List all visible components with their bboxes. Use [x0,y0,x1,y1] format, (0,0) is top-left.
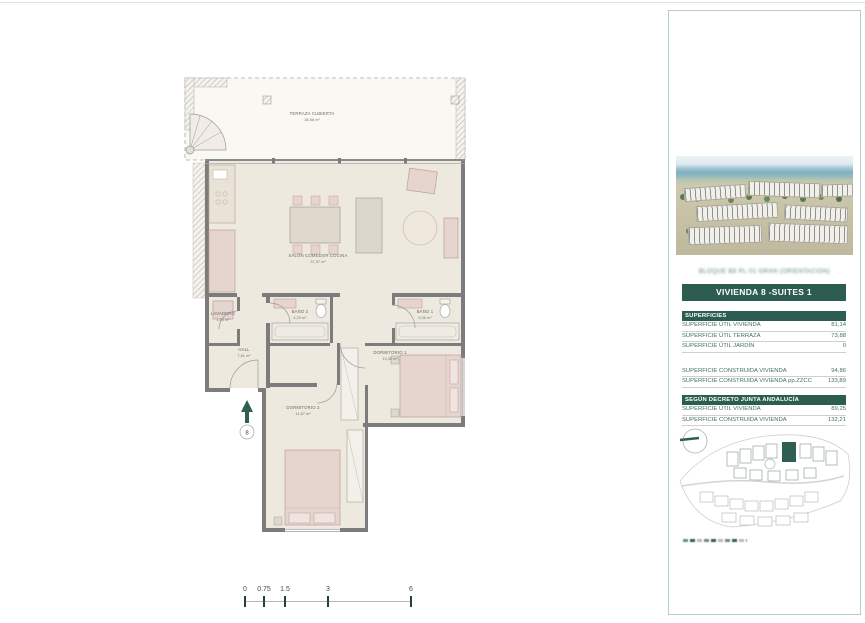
round-rug [403,211,437,245]
label-dormitorio2: DORMITORIO 2 [286,405,320,410]
table-row: SUPERFICIE ÚTIL VIVIENDA 89,25 [682,405,846,416]
terrace-pillar [263,96,271,104]
site-plan-legend [683,539,747,542]
north-marker-icon [680,429,707,453]
table-row: SUPERFICIE CONSTRUIDA VIVIENDA 132,21 [682,416,846,427]
scale-tick [410,596,412,607]
terrace [185,78,465,160]
row-label: SUPERFICIE ÚTIL TERRAZA [682,332,761,342]
highlighted-unit [782,442,796,462]
project-line: BLOQUE B8 PL-01 GRAN (ORIENTACIÓN) [669,269,860,275]
row-value: 132,21 [828,416,846,426]
scale-tick [263,596,265,607]
table-row: SUPERFICIE ÚTIL TERRAZA 73,88 [682,332,846,343]
table-row: SUPERFICIE ÚTIL JARDÍN 0 [682,342,846,353]
row-label: SUPERFICIE ÚTIL VIVIENDA [682,405,761,415]
label-bano1: BAÑO 1 [417,309,434,314]
row-label: SUPERFICIE ÚTIL JARDÍN [682,342,754,352]
table-row: SUPERFICIE ÚTIL VIVIENDA 81,14 [682,321,846,332]
unit-number-marker: 8 [240,425,254,439]
scale-label-6: 6 [409,586,413,593]
label-salon: SALÓN COMEDOR COCINA [288,253,347,258]
table-row: SUPERFICIE CONSTRUIDA VIVIENDA 94,86 [682,367,846,378]
scale-label-0: 0 [243,586,247,593]
road [682,476,844,486]
dining-table [290,196,340,254]
surfaces-header: SUPERFICIES [682,311,846,321]
site-plan [672,426,856,538]
label-bano2: BAÑO 2 [292,309,309,314]
row-value: 133,89 [828,377,846,387]
row-value: 94,86 [831,367,846,377]
scale-bar: 0 0.75 1.5 3 6 [235,586,420,612]
area-salon: 37,97 m² [310,259,326,264]
area-bano2: 4,29 m² [293,315,307,320]
scale-tick [284,596,286,607]
row-label: SUPERFICIE CONSTRUIDA VIVIENDA [682,416,787,426]
floor-plan: 8 TERRAZA CUBIERTA 38,58 m² SALÓN COMEDO… [180,70,480,540]
floor-plan-drawing: 8 TERRAZA CUBIERTA 38,58 m² SALÓN COMEDO… [180,70,480,540]
area-dormitorio2: 11,87 m² [295,411,311,416]
scale-label-075: 0.75 [257,586,271,593]
label-lavadero: LAVADERO [211,311,235,316]
terrace-pillar [451,96,459,104]
surfaces-table: SUPERFICIES SUPERFICIE ÚTIL VIVIENDA 81,… [682,311,846,426]
floorplan-page: { "floorplan": { "rooms": [ {"name": "TE… [0,0,865,623]
area-terraza: 38,58 m² [304,117,320,122]
info-sidebar: BLOQUE B8 PL-01 GRAN (ORIENTACIÓN) VIVIE… [668,10,861,615]
area-dormitorio1: 13,30 m² [382,356,398,361]
aerial-photo [676,156,853,255]
label-hall: HALL [238,347,250,352]
side-balcony-hatch [193,163,205,298]
page-top-border [0,2,865,3]
table-row: SUPERFICIE CONSTRUIDA VIVIENDA pp.ZZCC 1… [682,377,846,388]
scale-tick [244,596,246,607]
area-lavadero: 1,54 m² [216,317,230,322]
row-value: 73,88 [831,332,846,342]
row-label: SUPERFICIE CONSTRUIDA VIVIENDA pp.ZZCC [682,377,812,387]
row-value: 81,14 [831,321,846,331]
row-value: 0 [843,342,846,352]
scale-label-3: 3 [326,586,330,593]
row-label: SUPERFICIE CONSTRUIDA VIVIENDA [682,367,787,377]
row-value: 89,25 [831,405,846,415]
row-label: SUPERFICIE ÚTIL VIVIENDA [682,321,761,331]
entrance-arrow-icon [241,400,253,423]
decree-header: SEGÚN DECRETO JUNTA ANDALUCÍA [682,395,846,405]
scale-label-15: 1.5 [280,586,290,593]
area-hall: 7,81 m² [237,353,251,358]
lower-buildings [700,492,818,526]
area-bano1: 5,06 m² [418,315,432,320]
pool [765,459,775,469]
unit-title-bar: VIVIENDA 8 -SUITES 1 [682,284,846,301]
label-dormitorio1: DORMITORIO 1 [373,350,407,355]
label-terraza: TERRAZA CUBIERTA [290,111,335,116]
scale-tick [327,596,329,607]
